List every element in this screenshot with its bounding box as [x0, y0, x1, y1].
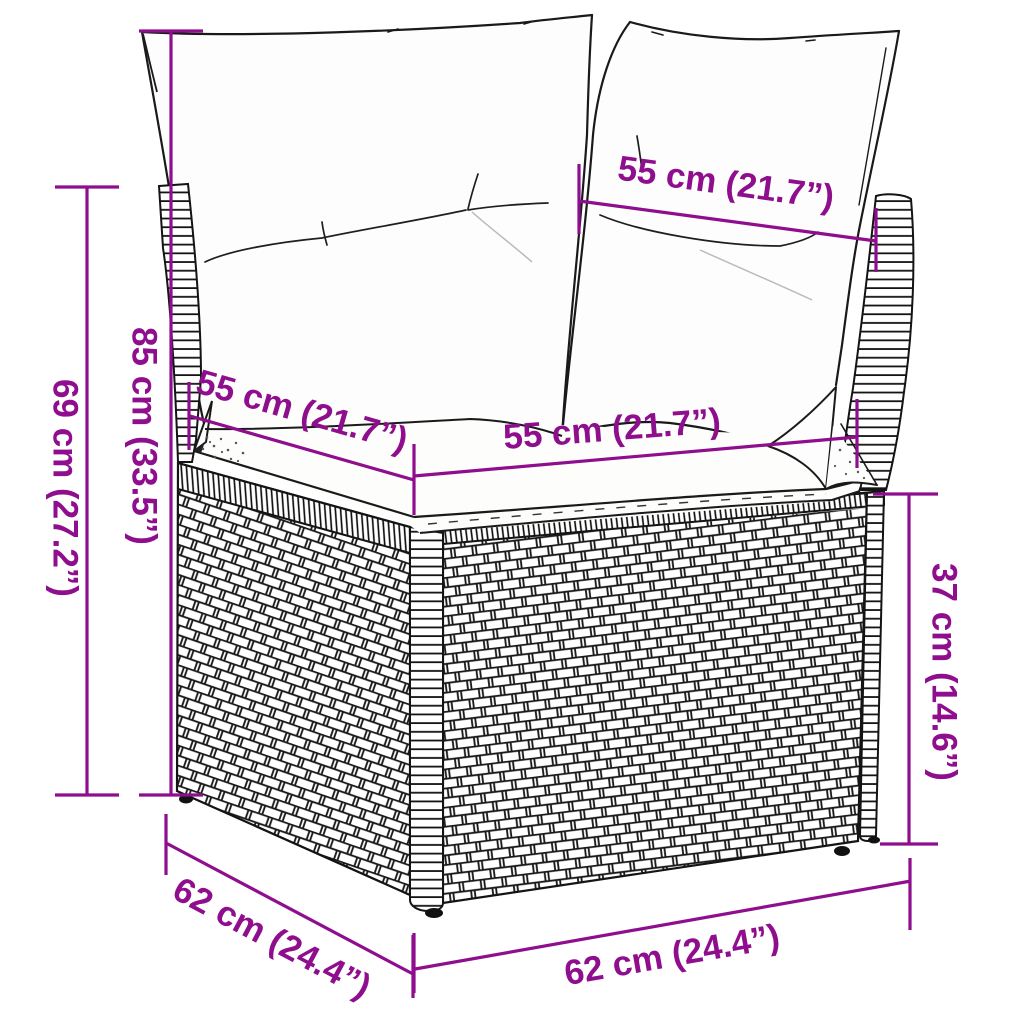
svg-text:69 cm (27.2”): 69 cm (27.2”)	[46, 379, 85, 597]
svg-text:37 cm (14.6”): 37 cm (14.6”)	[925, 563, 964, 781]
svg-text:85 cm (33.5”): 85 cm (33.5”)	[125, 327, 164, 545]
